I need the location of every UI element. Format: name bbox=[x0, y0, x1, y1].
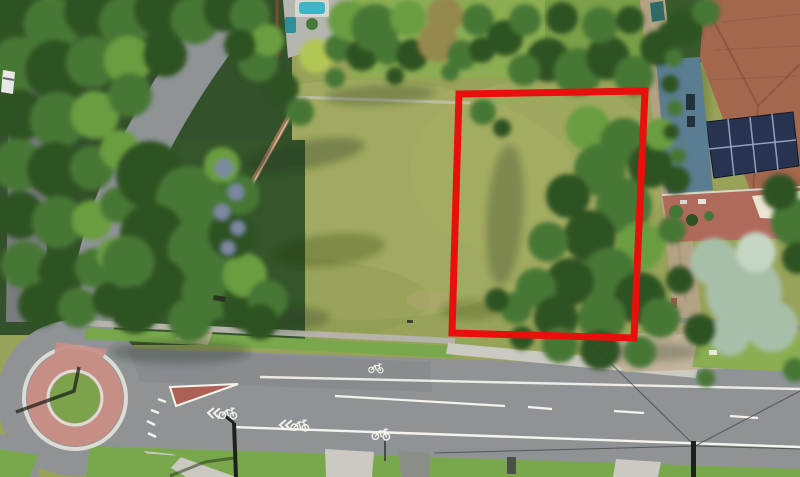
field-object bbox=[407, 320, 413, 323]
tree-canopy bbox=[746, 300, 798, 352]
verge-path bbox=[325, 449, 374, 477]
tree-canopy bbox=[242, 304, 278, 340]
tree-canopy bbox=[286, 98, 314, 126]
power-pole bbox=[691, 441, 696, 477]
verge-path bbox=[613, 459, 661, 477]
tree-canopy bbox=[231, 221, 245, 235]
tree-canopy bbox=[252, 24, 284, 56]
tree-canopy bbox=[470, 99, 496, 125]
aerial-photo-canvas bbox=[0, 0, 800, 477]
palm-tree bbox=[306, 18, 318, 30]
swimming-pool bbox=[299, 2, 325, 14]
tree-canopy bbox=[224, 29, 256, 61]
tree-canopy bbox=[441, 63, 459, 81]
parked-car-white bbox=[1, 70, 15, 94]
tree-canopy bbox=[58, 288, 98, 328]
tree-canopy bbox=[582, 7, 618, 43]
tree-canopy bbox=[762, 174, 798, 210]
tree-canopy bbox=[267, 72, 299, 104]
patio-plant bbox=[686, 214, 698, 226]
tree-canopy bbox=[658, 216, 686, 244]
tree-canopy bbox=[684, 314, 716, 346]
aerial-photo bbox=[0, 0, 800, 477]
tree-canopy bbox=[736, 232, 776, 272]
tree-canopy bbox=[663, 124, 679, 140]
street-light-pole bbox=[234, 423, 236, 477]
lawn-object bbox=[709, 350, 717, 355]
tree-canopy bbox=[108, 73, 152, 117]
tree-canopy bbox=[546, 2, 578, 34]
tree-canopy bbox=[102, 236, 154, 288]
tree-canopy bbox=[143, 33, 187, 77]
tree-canopy bbox=[666, 266, 694, 294]
window bbox=[686, 94, 695, 110]
tree-canopy bbox=[390, 0, 426, 36]
tree-canopy bbox=[662, 166, 690, 194]
tree-canopy bbox=[18, 283, 62, 327]
tree-canopy bbox=[485, 288, 509, 312]
tree-canopy bbox=[509, 4, 541, 36]
tree-canopy bbox=[168, 298, 212, 342]
tree-canopy bbox=[697, 369, 715, 387]
tree-canopy bbox=[508, 54, 540, 86]
patio-furniture bbox=[698, 199, 706, 204]
tree-canopy bbox=[640, 298, 680, 338]
window bbox=[687, 116, 695, 127]
patio-furniture bbox=[680, 200, 687, 204]
tree-canopy bbox=[690, 238, 738, 286]
tree-canopy bbox=[667, 100, 683, 116]
tree-canopy bbox=[658, 22, 678, 42]
tree-canopy bbox=[214, 204, 230, 220]
tree-canopy bbox=[661, 75, 679, 93]
tree-canopy bbox=[528, 222, 568, 262]
asphalt-path bbox=[399, 451, 431, 477]
tree-canopy bbox=[228, 184, 244, 200]
tree-canopy bbox=[325, 68, 345, 88]
tree-canopy bbox=[386, 67, 404, 85]
tree-canopy bbox=[215, 159, 233, 177]
tree-canopy bbox=[670, 148, 686, 164]
tree-canopy bbox=[493, 119, 511, 137]
tarp bbox=[650, 1, 665, 22]
tree-canopy bbox=[221, 241, 235, 255]
tree-shadow bbox=[110, 340, 250, 364]
roadside-sign bbox=[507, 457, 516, 474]
tree-canopy bbox=[616, 6, 644, 34]
tree-canopy bbox=[111, 286, 159, 334]
tree-canopy bbox=[665, 49, 683, 67]
patio-plant bbox=[704, 211, 714, 221]
parked-car-teal bbox=[285, 17, 296, 33]
